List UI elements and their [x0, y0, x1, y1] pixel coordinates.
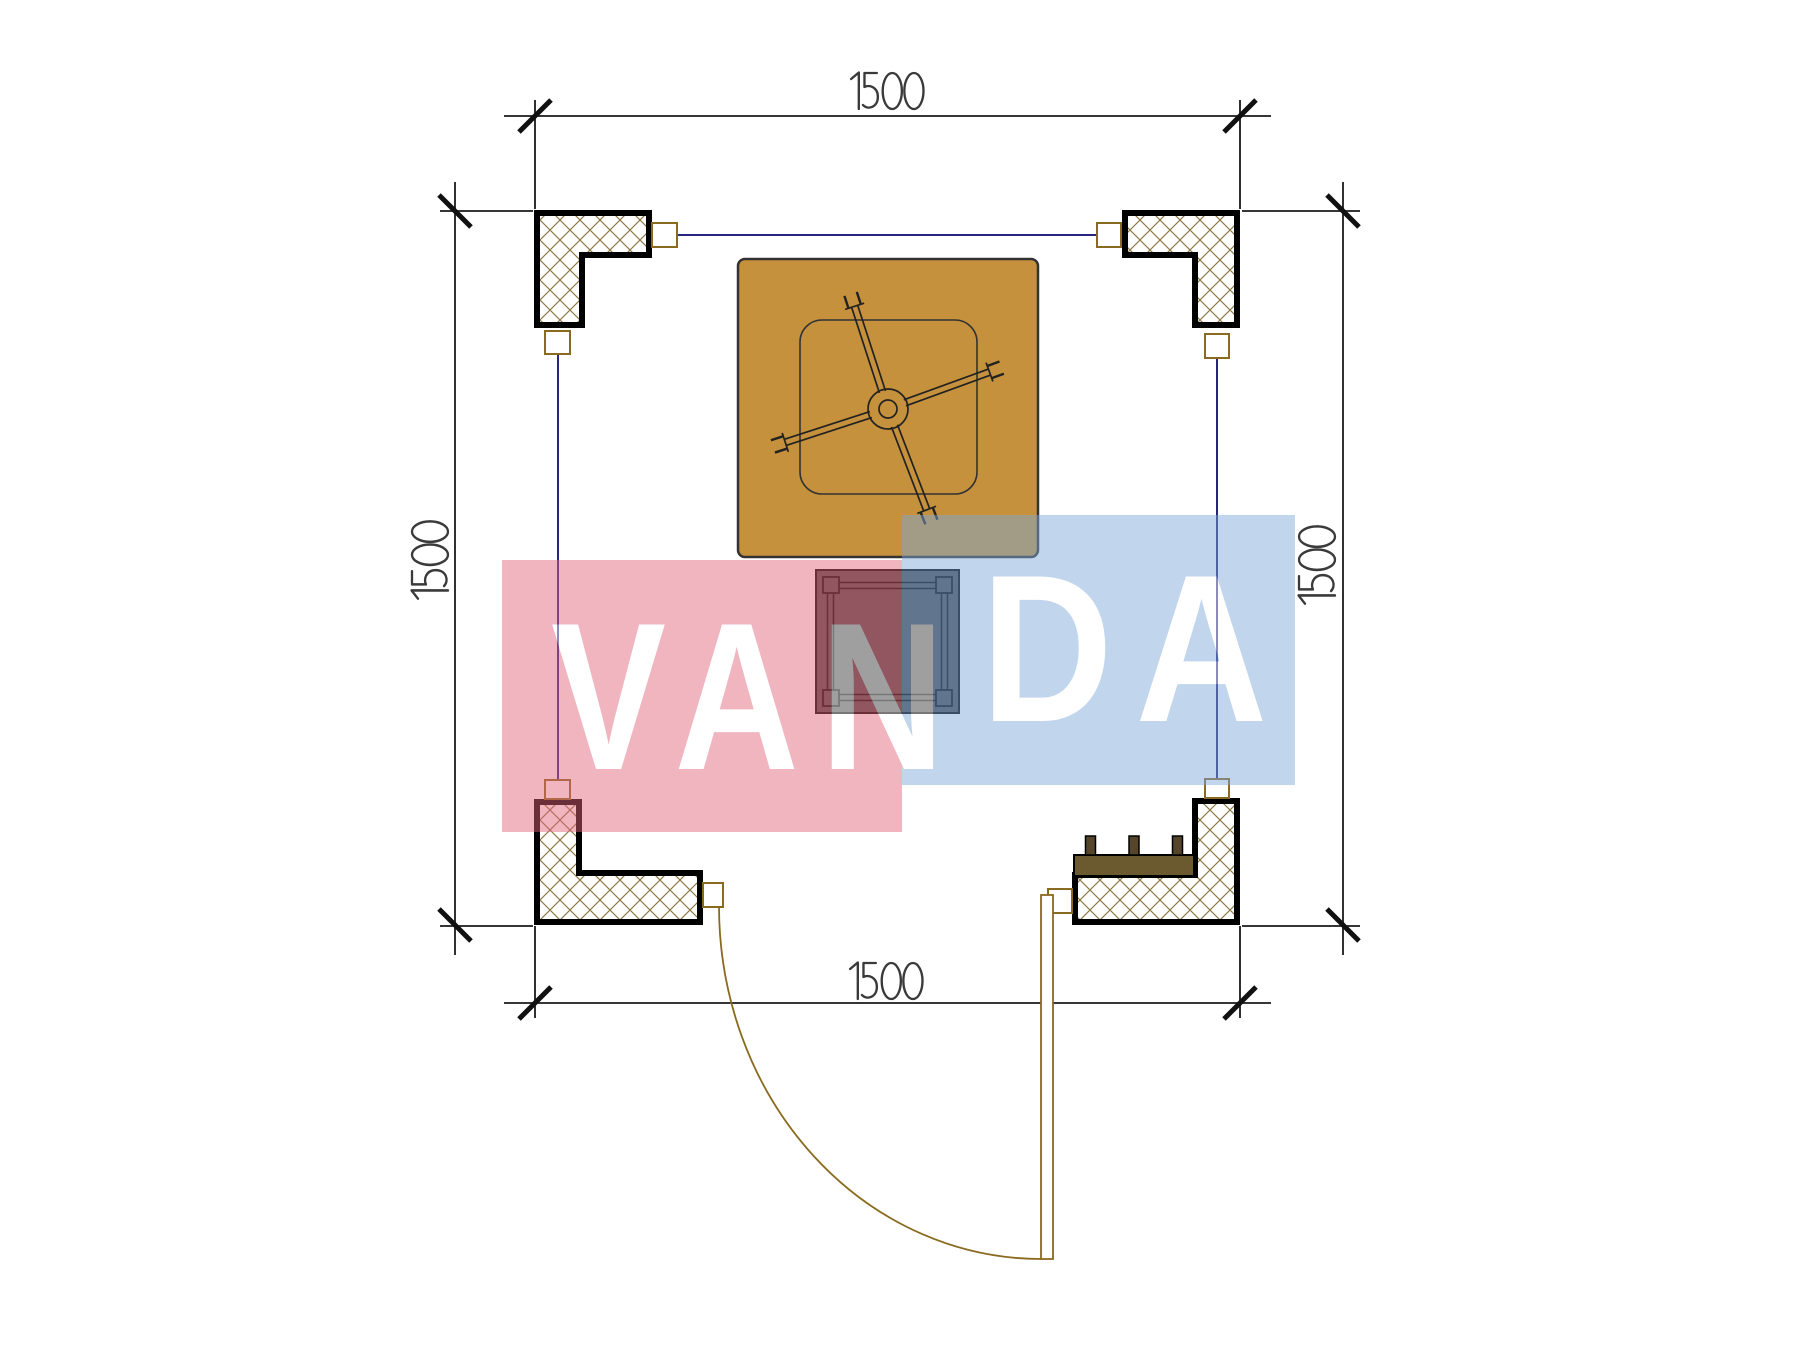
svg-text:DA: DA	[981, 531, 1290, 766]
svg-text:VAN: VAN	[551, 579, 966, 814]
